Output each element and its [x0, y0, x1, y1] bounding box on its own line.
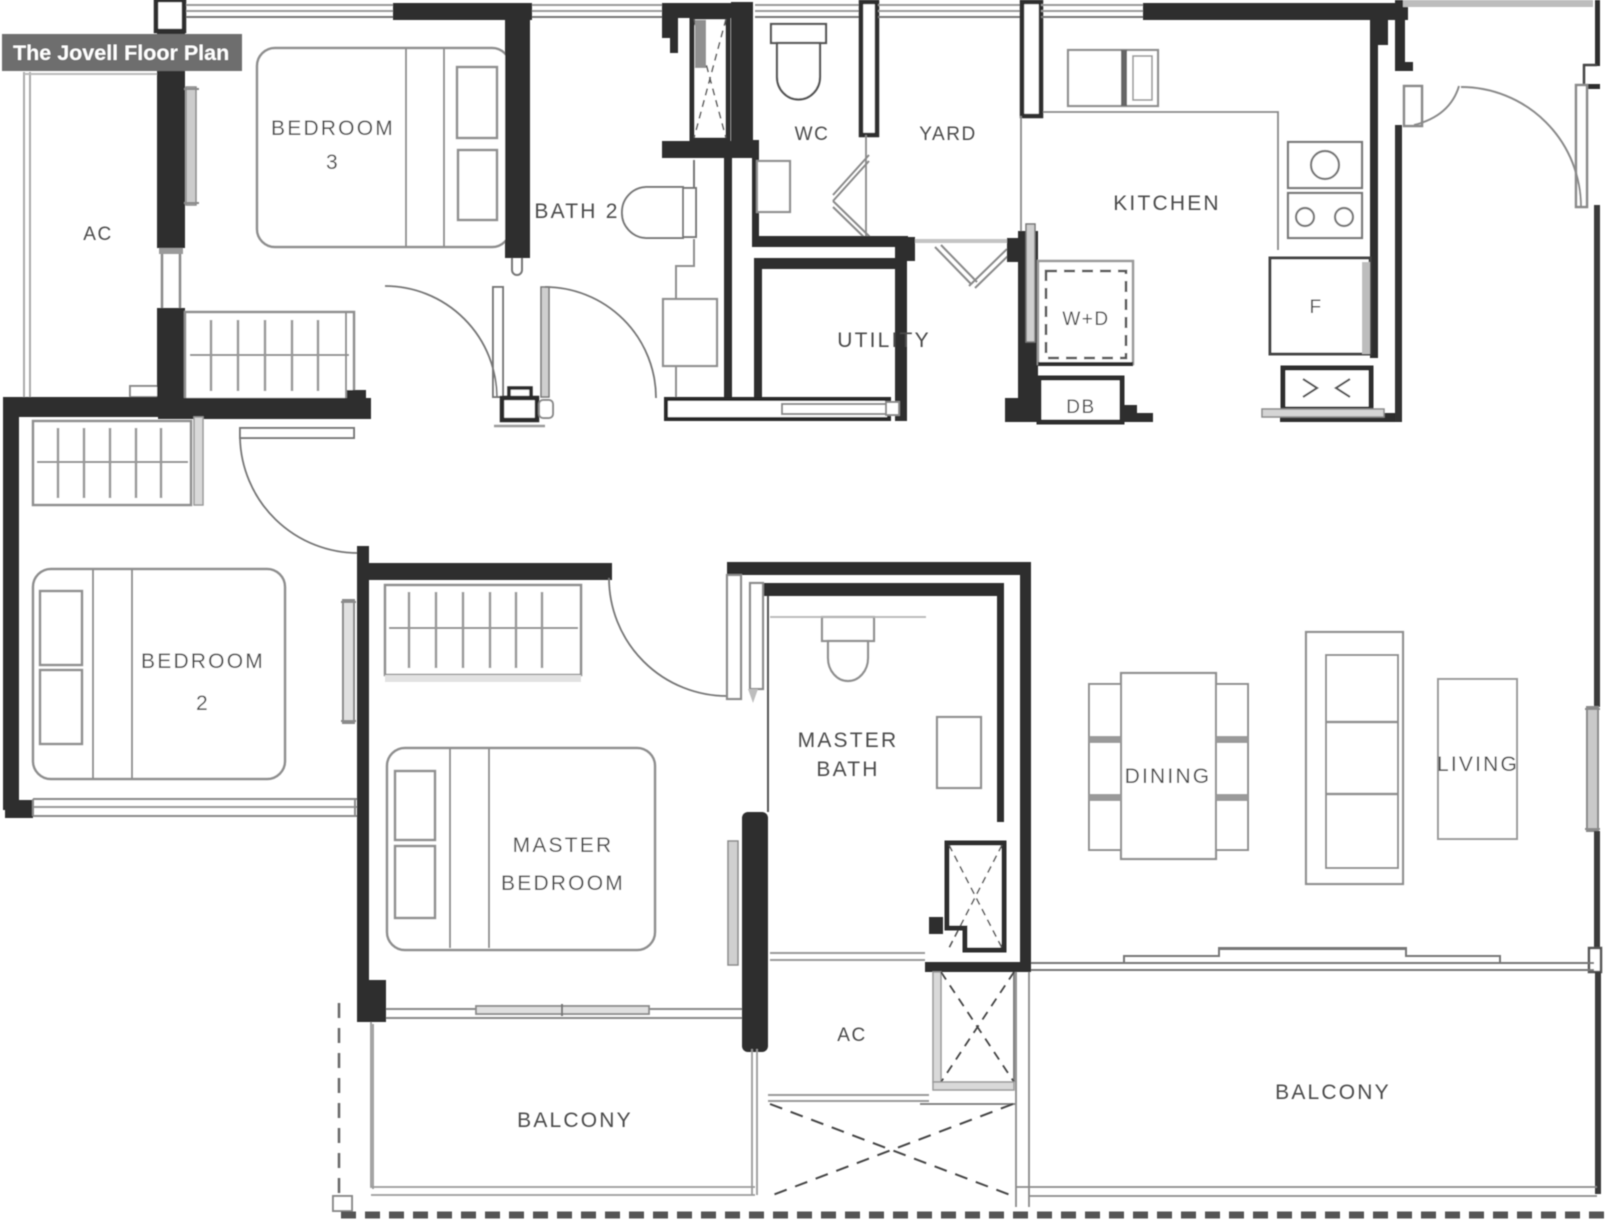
svg-text:BATH: BATH	[816, 758, 879, 781]
svg-text:BEDROOM: BEDROOM	[501, 872, 625, 895]
svg-text:LIVING: LIVING	[1437, 753, 1519, 776]
svg-text:KITCHEN: KITCHEN	[1113, 192, 1221, 215]
svg-text:The Jovell Floor Plan: The Jovell Floor Plan	[13, 41, 229, 65]
svg-text:BEDROOM: BEDROOM	[141, 650, 265, 673]
svg-text:MASTER: MASTER	[798, 729, 899, 752]
svg-text:DINING: DINING	[1125, 765, 1212, 788]
svg-text:MASTER: MASTER	[513, 834, 614, 857]
svg-text:DB: DB	[1066, 397, 1095, 418]
svg-text:BALCONY: BALCONY	[517, 1109, 633, 1132]
svg-text:YARD: YARD	[919, 124, 976, 145]
svg-text:BALCONY: BALCONY	[1275, 1081, 1391, 1104]
svg-text:2: 2	[196, 692, 210, 715]
svg-text:BATH 2: BATH 2	[534, 200, 619, 223]
svg-text:UTILITY: UTILITY	[837, 329, 931, 352]
svg-text:BEDROOM: BEDROOM	[271, 117, 395, 140]
svg-text:F: F	[1309, 297, 1322, 318]
svg-text:AC: AC	[83, 224, 112, 245]
svg-text:AC: AC	[837, 1025, 866, 1046]
svg-text:W+D: W+D	[1062, 309, 1109, 330]
svg-text:3: 3	[326, 151, 340, 174]
svg-text:WC: WC	[795, 124, 830, 145]
